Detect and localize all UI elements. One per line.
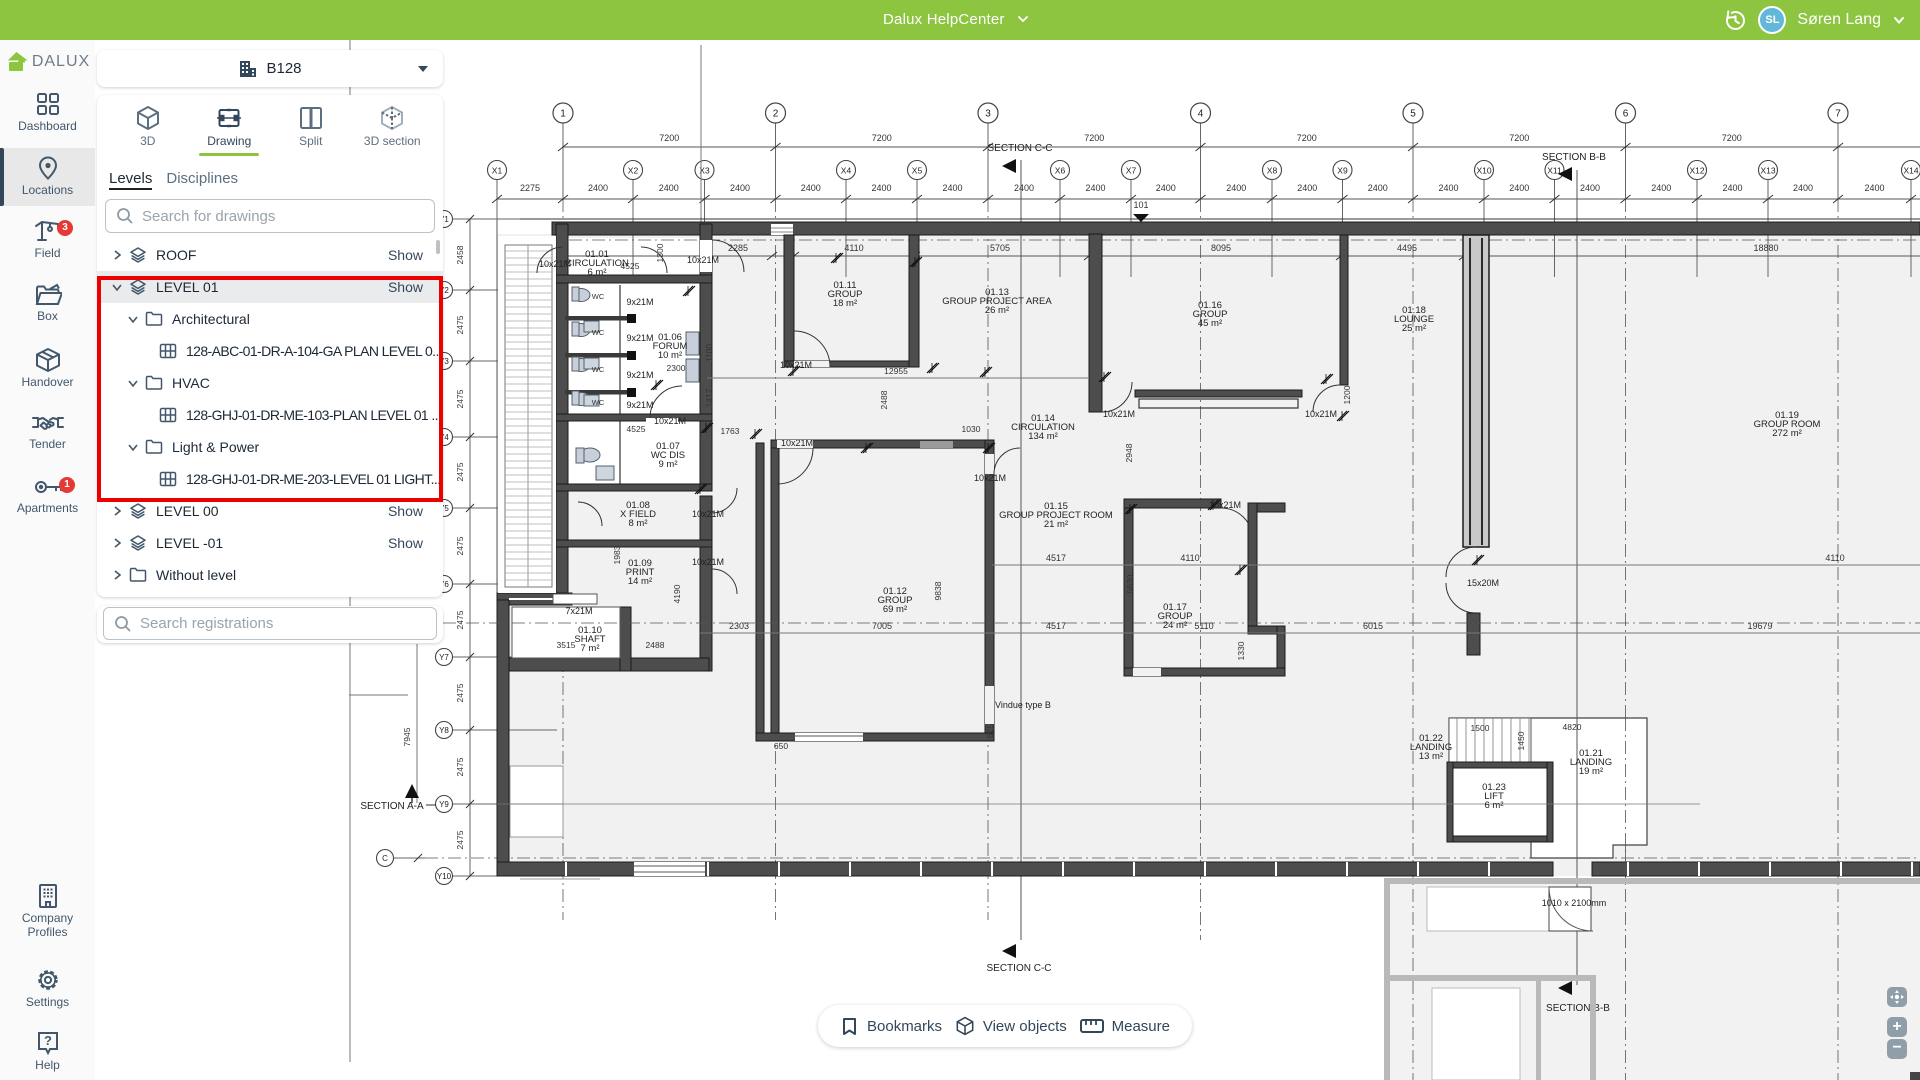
svg-text:2400: 2400 xyxy=(1297,183,1317,193)
svg-text:7945: 7945 xyxy=(402,727,412,746)
svg-text:X10: X10 xyxy=(1476,166,1491,176)
svg-text:2400: 2400 xyxy=(1793,183,1813,193)
svg-text:2400: 2400 xyxy=(871,183,891,193)
svg-text:1010 x 2100mm: 1010 x 2100mm xyxy=(1542,898,1607,908)
svg-text:5705: 5705 xyxy=(990,243,1010,253)
svg-text:134 m²: 134 m² xyxy=(1028,431,1058,442)
svg-text:2488: 2488 xyxy=(879,390,889,409)
svg-text:13 m²: 13 m² xyxy=(1419,751,1443,762)
svg-text:SECTION C-C: SECTION C-C xyxy=(988,143,1053,154)
svg-text:2488: 2488 xyxy=(646,640,665,650)
svg-text:X5: X5 xyxy=(912,166,923,176)
svg-text:7200: 7200 xyxy=(659,133,679,143)
svg-text:6: 6 xyxy=(1623,109,1629,120)
svg-text:2400: 2400 xyxy=(1014,183,1034,193)
svg-text:9838: 9838 xyxy=(933,581,943,600)
svg-text:10x21M: 10x21M xyxy=(687,255,719,265)
svg-text:4110: 4110 xyxy=(1825,553,1844,563)
svg-text:8095: 8095 xyxy=(1211,243,1231,253)
svg-text:7200: 7200 xyxy=(1084,133,1104,143)
svg-text:10x21M: 10x21M xyxy=(974,473,1006,483)
svg-text:WC: WC xyxy=(592,328,605,337)
svg-text:4820: 4820 xyxy=(1563,722,1582,732)
svg-text:2400: 2400 xyxy=(730,183,750,193)
svg-text:2400: 2400 xyxy=(1438,183,1458,193)
svg-text:SECTION B-B: SECTION B-B xyxy=(1542,152,1606,163)
svg-text:X2: X2 xyxy=(628,166,639,176)
svg-text:10x21M: 10x21M xyxy=(692,509,724,519)
svg-text:1983: 1983 xyxy=(612,545,622,564)
svg-text:X1: X1 xyxy=(492,166,503,176)
svg-text:12955: 12955 xyxy=(884,366,908,376)
svg-text:19679: 19679 xyxy=(1747,621,1772,631)
svg-text:2475: 2475 xyxy=(455,610,465,629)
svg-text:X4: X4 xyxy=(841,166,852,176)
svg-text:9x21M: 9x21M xyxy=(626,297,653,307)
svg-text:2303: 2303 xyxy=(729,621,749,631)
svg-text:X9: X9 xyxy=(1337,166,1348,176)
svg-text:WC: WC xyxy=(592,292,605,301)
svg-text:1450: 1450 xyxy=(1516,731,1526,750)
svg-text:6 m²: 6 m² xyxy=(1485,800,1504,811)
svg-text:2400: 2400 xyxy=(1864,183,1884,193)
svg-text:5: 5 xyxy=(1410,109,1416,120)
svg-text:2275: 2275 xyxy=(520,183,540,193)
svg-text:10x21M: 10x21M xyxy=(1209,500,1241,510)
svg-text:2475: 2475 xyxy=(455,830,465,849)
svg-text:Y10: Y10 xyxy=(437,872,452,881)
svg-text:6015: 6015 xyxy=(1363,621,1383,631)
svg-text:5630: 5630 xyxy=(1125,574,1135,593)
svg-text:1300: 1300 xyxy=(655,243,665,262)
svg-text:1030: 1030 xyxy=(962,424,981,434)
svg-text:2400: 2400 xyxy=(801,183,821,193)
svg-text:2400: 2400 xyxy=(1156,183,1176,193)
svg-text:2: 2 xyxy=(773,109,779,120)
svg-text:C: C xyxy=(382,854,388,863)
svg-text:8 m²: 8 m² xyxy=(629,518,648,529)
svg-text:4517: 4517 xyxy=(1046,621,1066,631)
svg-text:2475: 2475 xyxy=(455,683,465,702)
svg-text:18 m²: 18 m² xyxy=(833,298,857,309)
svg-text:2475: 2475 xyxy=(455,757,465,776)
svg-text:Y7: Y7 xyxy=(439,653,449,662)
svg-text:7200: 7200 xyxy=(872,133,892,143)
svg-text:272 m²: 272 m² xyxy=(1772,428,1802,439)
svg-text:7 m²: 7 m² xyxy=(581,643,600,654)
svg-text:4517: 4517 xyxy=(1046,553,1066,563)
svg-text:19 m²: 19 m² xyxy=(1579,766,1603,777)
svg-text:10x21M: 10x21M xyxy=(781,438,813,448)
svg-text:1417: 1417 xyxy=(704,388,714,407)
svg-text:9x21M: 9x21M xyxy=(626,400,653,410)
svg-text:10x21M: 10x21M xyxy=(539,259,571,269)
svg-text:7200: 7200 xyxy=(1509,133,1529,143)
svg-text:101: 101 xyxy=(1133,200,1148,210)
svg-text:4495: 4495 xyxy=(1397,243,1417,253)
svg-text:1763: 1763 xyxy=(721,426,740,436)
svg-text:9x21M: 9x21M xyxy=(626,370,653,380)
svg-text:SECTION A-A: SECTION A-A xyxy=(360,801,424,812)
svg-text:69 m²: 69 m² xyxy=(883,604,907,615)
svg-text:4110: 4110 xyxy=(844,243,863,253)
svg-text:26 m²: 26 m² xyxy=(985,305,1009,316)
svg-text:25 m²: 25 m² xyxy=(1402,323,1426,334)
svg-text:2948: 2948 xyxy=(1124,443,1134,462)
svg-text:X12: X12 xyxy=(1689,166,1704,176)
svg-text:2400: 2400 xyxy=(659,183,679,193)
svg-text:?: ? xyxy=(44,1033,52,1048)
svg-text:WC: WC xyxy=(592,398,605,407)
svg-text:1500: 1500 xyxy=(1471,723,1490,733)
svg-text:1: 1 xyxy=(560,109,566,120)
svg-text:2400: 2400 xyxy=(1226,183,1246,193)
svg-text:X8: X8 xyxy=(1267,166,1278,176)
svg-text:2300: 2300 xyxy=(667,363,686,373)
svg-text:21 m²: 21 m² xyxy=(1044,519,1068,530)
svg-text:X6: X6 xyxy=(1055,166,1066,176)
svg-text:2400: 2400 xyxy=(588,183,608,193)
svg-text:10x21M: 10x21M xyxy=(1305,409,1337,419)
svg-text:2475: 2475 xyxy=(455,389,465,408)
svg-text:2475: 2475 xyxy=(455,462,465,481)
svg-text:9 m²: 9 m² xyxy=(659,459,678,470)
svg-text:Vindue type B: Vindue type B xyxy=(995,700,1051,710)
svg-text:X7: X7 xyxy=(1126,166,1137,176)
svg-text:2285: 2285 xyxy=(728,243,748,253)
svg-text:4190: 4190 xyxy=(672,584,682,603)
svg-text:625: 625 xyxy=(985,724,995,738)
svg-text:2400: 2400 xyxy=(1368,183,1388,193)
svg-text:2400: 2400 xyxy=(1509,183,1529,193)
svg-text:4525: 4525 xyxy=(627,424,646,434)
svg-text:5110: 5110 xyxy=(1194,621,1213,631)
svg-text:6 m²: 6 m² xyxy=(588,267,607,278)
svg-text:1330: 1330 xyxy=(1236,641,1246,660)
svg-text:3: 3 xyxy=(985,109,991,120)
svg-text:4110: 4110 xyxy=(1180,553,1199,563)
svg-text:7200: 7200 xyxy=(1297,133,1317,143)
svg-text:SECTION B-B: SECTION B-B xyxy=(1546,1003,1610,1014)
svg-text:10x21M: 10x21M xyxy=(692,557,724,567)
svg-text:18880: 18880 xyxy=(1753,243,1778,253)
svg-text:7200: 7200 xyxy=(1722,133,1742,143)
svg-text:WC: WC xyxy=(592,365,605,374)
svg-text:2400: 2400 xyxy=(1651,183,1671,193)
svg-text:1100: 1100 xyxy=(704,344,714,363)
svg-text:X13: X13 xyxy=(1760,166,1775,176)
svg-text:9x21M: 9x21M xyxy=(626,333,653,343)
svg-text:X14: X14 xyxy=(1903,166,1918,176)
svg-text:SECTION C-C: SECTION C-C xyxy=(987,963,1052,974)
svg-text:7: 7 xyxy=(1835,109,1841,120)
svg-text:4: 4 xyxy=(1198,109,1204,120)
svg-text:Y9: Y9 xyxy=(439,800,449,809)
svg-text:10x21M: 10x21M xyxy=(654,416,686,426)
svg-text:10 m²: 10 m² xyxy=(658,350,682,361)
svg-text:2475: 2475 xyxy=(455,536,465,555)
svg-text:7005: 7005 xyxy=(872,621,892,631)
svg-text:2400: 2400 xyxy=(1722,183,1742,193)
svg-text:Y8: Y8 xyxy=(439,726,449,735)
svg-text:24 m²: 24 m² xyxy=(1163,620,1187,631)
svg-text:2400: 2400 xyxy=(942,183,962,193)
svg-text:2458: 2458 xyxy=(455,245,465,264)
svg-text:15x20M: 15x20M xyxy=(1467,578,1499,588)
svg-text:2475: 2475 xyxy=(455,315,465,334)
svg-text:650: 650 xyxy=(774,741,788,751)
svg-text:2400: 2400 xyxy=(1085,183,1105,193)
svg-text:10x21M: 10x21M xyxy=(780,360,812,370)
svg-text:3515: 3515 xyxy=(557,640,576,650)
svg-text:1200: 1200 xyxy=(1342,385,1352,404)
svg-text:10x21M: 10x21M xyxy=(1103,409,1135,419)
svg-text:14 m²: 14 m² xyxy=(628,576,652,587)
svg-text:2400: 2400 xyxy=(1580,183,1600,193)
svg-text:7x21M: 7x21M xyxy=(565,606,592,616)
svg-text:45 m²: 45 m² xyxy=(1198,318,1222,329)
